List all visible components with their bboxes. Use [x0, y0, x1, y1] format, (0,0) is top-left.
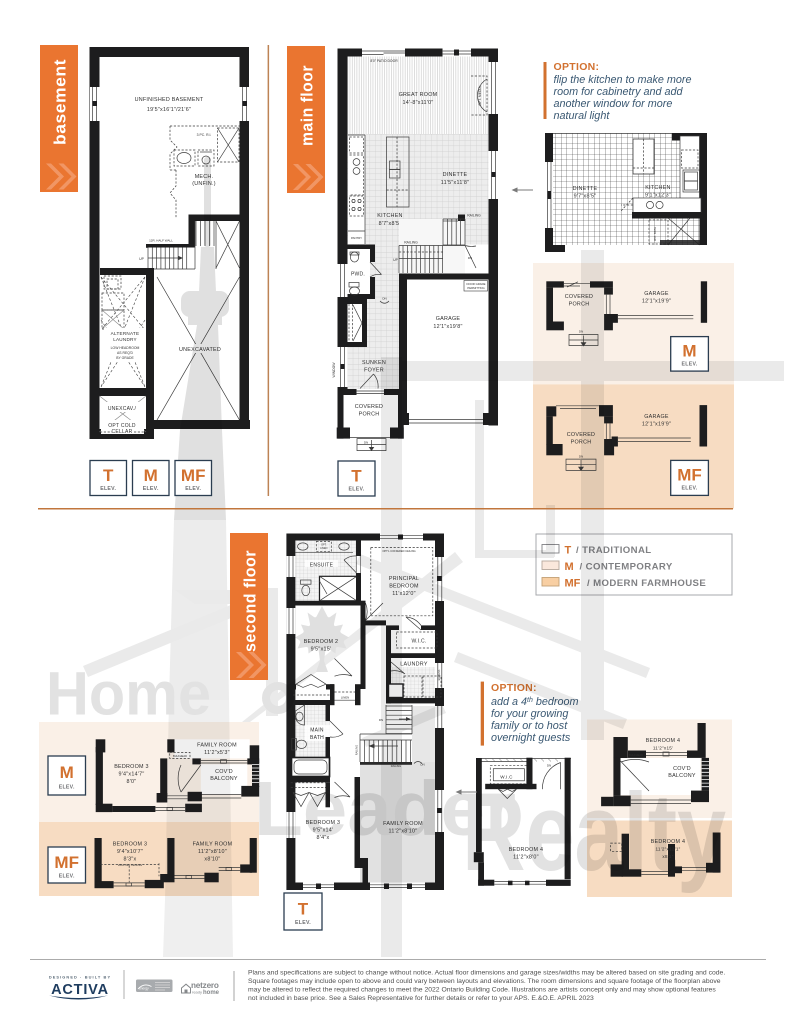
svg-text:for your growing: for your growing — [491, 708, 568, 720]
svg-text:GARAGE: GARAGE — [644, 291, 669, 297]
svg-text:9'4"x10'7": 9'4"x10'7" — [117, 849, 143, 855]
svg-text:BEDROOM 4: BEDROOM 4 — [646, 738, 681, 744]
svg-text:Plans and specifications are s: Plans and specifications are subject to … — [248, 970, 725, 977]
svg-text:Realty: Realty — [462, 771, 726, 894]
svg-text:UP: UP — [139, 257, 144, 261]
svg-text:MAIN: MAIN — [310, 728, 324, 734]
svg-text:may be altered to reflect the: may be altered to reflect the required c… — [248, 987, 716, 994]
svg-text:main floor: main floor — [299, 65, 317, 146]
svg-text:Square footages may include op: Square footages may include open to abov… — [248, 978, 721, 985]
svg-text:PORCH: PORCH — [359, 412, 380, 418]
svg-text:second floor: second floor — [242, 550, 260, 652]
svg-text:12'1"x19'9": 12'1"x19'9" — [642, 422, 671, 428]
svg-text:WINDOW: WINDOW — [332, 362, 336, 378]
svg-text:LAUNDRY: LAUNDRY — [113, 337, 137, 342]
svg-text:RAILING: RAILING — [404, 241, 418, 245]
svg-text:LAUNDRY: LAUNDRY — [400, 662, 428, 668]
svg-text:natural light: natural light — [554, 110, 611, 122]
svg-text:BULKHEAD: BULKHEAD — [629, 753, 643, 757]
svg-text:T: T — [565, 545, 572, 557]
svg-text:MF: MF — [181, 466, 206, 485]
svg-text:MF: MF — [677, 466, 702, 485]
svg-text:KITCHEN: KITCHEN — [645, 185, 670, 191]
svg-text:DN: DN — [547, 764, 551, 768]
svg-text:BATH: BATH — [310, 735, 324, 741]
svg-text:KITCHEN: KITCHEN — [377, 213, 402, 219]
svg-text:3PC. BATH: 3PC. BATH — [653, 227, 657, 241]
svg-text:FOYER: FOYER — [364, 368, 384, 374]
svg-text:GARAGE: GARAGE — [644, 414, 669, 420]
svg-text:UP: UP — [393, 258, 398, 262]
svg-text:RAILING: RAILING — [355, 745, 359, 755]
svg-text:LINEN: LINEN — [320, 547, 327, 550]
svg-text:overnight guests: overnight guests — [491, 732, 571, 744]
svg-text:GREAT ROOM: GREAT ROOM — [399, 92, 438, 98]
svg-text:DN: DN — [364, 441, 368, 445]
svg-text:ENSUITE: ENSUITE — [310, 563, 334, 569]
svg-text:DESIGNED · BUILT BY: DESIGNED · BUILT BY — [49, 975, 111, 980]
svg-text:DN: DN — [382, 297, 386, 301]
svg-text:9'4"x14'7": 9'4"x14'7" — [118, 772, 144, 778]
svg-text:LOW HEADROOM: LOW HEADROOM — [111, 346, 140, 350]
svg-text:ELEV.: ELEV. — [348, 487, 364, 493]
svg-text:9'1"x12'3": 9'1"x12'3" — [645, 193, 671, 199]
svg-text:8'0" PATIO DOOR: 8'0" PATIO DOOR — [370, 59, 398, 63]
svg-text:ALTERNATE: ALTERNATE — [111, 331, 140, 336]
svg-text:BEDROOM 3: BEDROOM 3 — [113, 842, 148, 848]
svg-text:OPTION:: OPTION: — [554, 61, 600, 73]
svg-text:/ MODERN FARMHOUSE: / MODERN FARMHOUSE — [587, 578, 706, 589]
svg-text:MF: MF — [565, 578, 581, 590]
svg-text:T: T — [103, 466, 114, 485]
svg-text:UNFINISHED BASEMENT: UNFINISHED BASEMENT — [135, 97, 204, 103]
svg-text:ELEV.: ELEV. — [295, 920, 311, 926]
svg-text:PANTRY: PANTRY — [351, 236, 362, 240]
svg-text:DN: DN — [468, 256, 472, 260]
svg-text:ACTIVA: ACTIVA — [51, 982, 109, 998]
svg-text:UNEXCAV./: UNEXCAV./ — [108, 406, 137, 412]
svg-text:room for cabinetry and add: room for cabinetry and add — [554, 86, 684, 98]
svg-text:M: M — [565, 561, 574, 573]
svg-text:home: home — [203, 990, 220, 996]
svg-text:PERMITTING: PERMITTING — [467, 286, 484, 290]
svg-text:12'1"x19'9": 12'1"x19'9" — [642, 299, 671, 305]
svg-text:T: T — [351, 467, 362, 486]
svg-text:19'5"x16'1"/21'6": 19'5"x16'1"/21'6" — [147, 107, 191, 113]
svg-text:RAILING: RAILING — [467, 214, 481, 218]
svg-text:basement: basement — [52, 59, 70, 145]
svg-text:family or to host: family or to host — [491, 720, 568, 732]
svg-text:M: M — [60, 763, 74, 782]
svg-text:8'7"x8'5": 8'7"x8'5" — [379, 221, 402, 227]
svg-text:OPT. MEDIA: OPT. MEDIA — [478, 86, 482, 106]
svg-text:flip the kitchen to make more: flip the kitchen to make more — [554, 74, 692, 86]
svg-text:ELEV.: ELEV. — [143, 486, 159, 492]
svg-text:COVERED: COVERED — [355, 404, 383, 410]
svg-text:PWD.: PWD. — [351, 272, 365, 278]
svg-text:3 PC. R.I.: 3 PC. R.I. — [197, 133, 212, 137]
svg-text:T: T — [298, 900, 309, 919]
svg-text:8'0": 8'0" — [127, 779, 137, 785]
svg-text:ELEV.: ELEV. — [100, 486, 116, 492]
svg-text:LINEN: LINEN — [341, 696, 349, 700]
svg-text:BEDROOM 3: BEDROOM 3 — [114, 764, 149, 770]
svg-text:M: M — [144, 466, 158, 485]
svg-text:another window for more: another window for more — [554, 98, 673, 110]
svg-text:AS REQ'D: AS REQ'D — [117, 351, 133, 355]
svg-text:BY GRADE: BY GRADE — [116, 356, 134, 360]
svg-text:GARAGE: GARAGE — [436, 316, 461, 322]
svg-text:ready: ready — [192, 990, 202, 995]
svg-text:14'-8"x11'0": 14'-8"x11'0" — [403, 100, 434, 106]
svg-text:W.I.C.: W.I.C. — [411, 639, 426, 645]
svg-text:DINETTE: DINETTE — [443, 172, 468, 178]
svg-text:12'1"x19'8": 12'1"x19'8" — [433, 324, 462, 330]
svg-text:CELLAR: CELLAR — [112, 429, 133, 435]
svg-text:ELEV.: ELEV. — [681, 486, 697, 492]
svg-text:ELEV.: ELEV. — [59, 785, 75, 791]
svg-text:VAULTED CEILING: VAULTED CEILING — [118, 863, 142, 867]
svg-text:12R. HALF WALL: 12R. HALF WALL — [149, 239, 173, 243]
svg-text:not included in base price. Se: not included in base price. See a Sales … — [248, 995, 594, 1002]
svg-text:DINETTE: DINETTE — [573, 186, 598, 192]
svg-text:ELEV.: ELEV. — [681, 362, 697, 368]
svg-text:ELEV.: ELEV. — [185, 486, 201, 492]
svg-text:11'2"x15': 11'2"x15' — [653, 746, 673, 751]
svg-text:11'5"x11'8": 11'5"x11'8" — [441, 180, 470, 186]
svg-text:EGRESS: EGRESS — [437, 669, 441, 680]
svg-text:energy: energy — [139, 987, 149, 991]
svg-text:ELEV.: ELEV. — [59, 874, 75, 880]
svg-text:8'3"x: 8'3"x — [124, 857, 137, 863]
svg-text:Home: Home — [46, 660, 211, 728]
svg-text:MF: MF — [54, 853, 79, 872]
svg-text:9'7"x8'5": 9'7"x8'5" — [574, 194, 597, 200]
svg-text:M: M — [682, 342, 696, 361]
